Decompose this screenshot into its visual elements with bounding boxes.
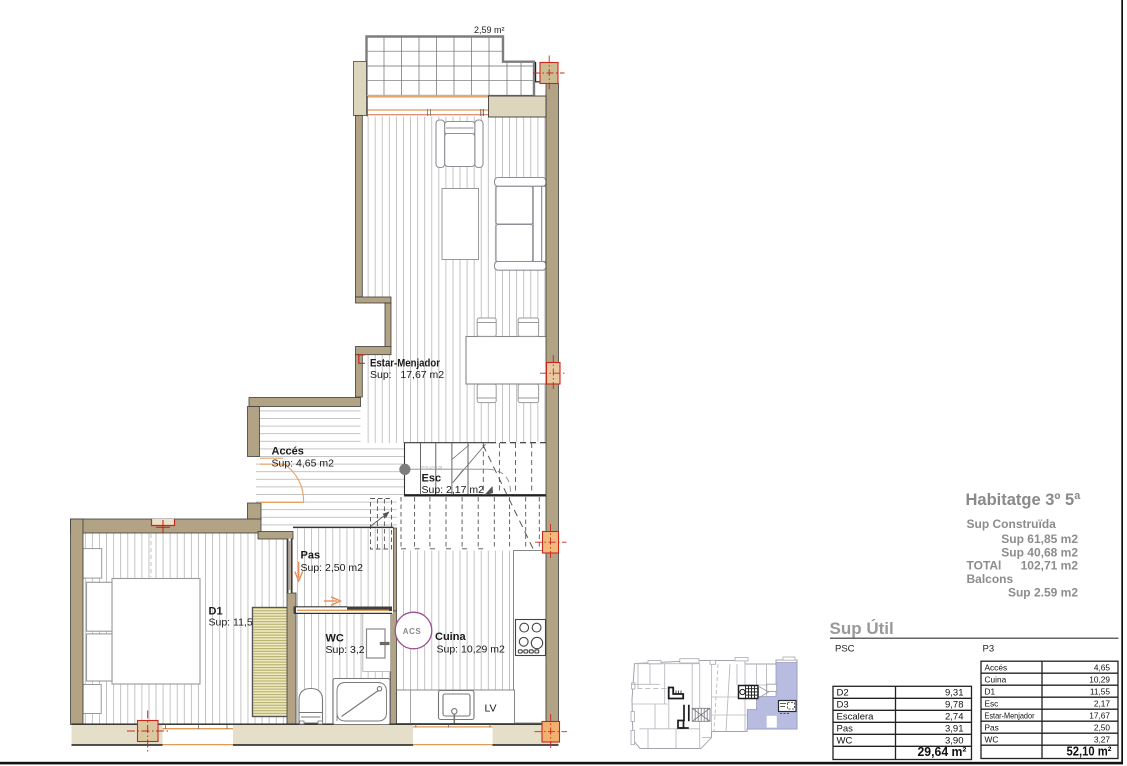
svg-text:Cuina: Cuina	[435, 631, 466, 643]
svg-text:LV: LV	[485, 703, 497, 715]
svg-text:3,91: 3,91	[945, 724, 964, 735]
svg-text:102,71 m2: 102,71 m2	[1021, 559, 1079, 573]
svg-text:D3: D3	[837, 700, 849, 711]
svg-text:WC: WC	[837, 736, 853, 747]
svg-text:Balcons: Balcons	[967, 572, 1014, 586]
svg-text:4,65: 4,65	[1094, 662, 1111, 672]
svg-text:Pas: Pas	[837, 724, 854, 735]
svg-text:Sup: 2,17 m2: Sup: 2,17 m2	[422, 484, 485, 496]
svg-text:Esc: Esc	[985, 698, 999, 708]
svg-text:9,31: 9,31	[945, 688, 964, 699]
svg-text:Sup Útil: Sup Útil	[830, 619, 894, 638]
svg-text:2,17: 2,17	[1094, 698, 1111, 708]
svg-text:Sup Construïda: Sup Construïda	[967, 517, 1057, 531]
svg-text:Habitatge 3º 5ª: Habitatge 3º 5ª	[966, 491, 1082, 509]
svg-text:Cuina: Cuina	[985, 674, 1007, 684]
svg-text:29,64 m²: 29,64 m²	[918, 744, 968, 759]
svg-text:2,59 m²: 2,59 m²	[474, 25, 505, 35]
svg-text:10,29: 10,29	[1089, 674, 1110, 684]
svg-text:P3: P3	[983, 644, 995, 655]
svg-text:ACS: ACS	[403, 627, 422, 636]
svg-text:Sup: 17,67 m2: Sup: 17,67 m2	[370, 369, 444, 381]
svg-text:D1: D1	[985, 686, 996, 696]
svg-text:WC: WC	[985, 734, 999, 744]
svg-text:P=0.17+0.28: P=0.17+0.28	[422, 466, 443, 470]
svg-text:Sup: 2,50 m2: Sup: 2,50 m2	[301, 562, 364, 574]
svg-text:Escalera: Escalera	[837, 712, 875, 723]
svg-text:2,50: 2,50	[1094, 722, 1111, 732]
svg-text:PSC: PSC	[835, 644, 855, 655]
svg-text:2,74: 2,74	[945, 712, 964, 723]
svg-text:Estar-Menjador: Estar-Menjador	[370, 358, 441, 370]
svg-text:Esc: Esc	[422, 473, 442, 485]
svg-text:Estar-Menjador: Estar-Menjador	[985, 710, 1035, 720]
svg-text:Accés: Accés	[272, 446, 304, 458]
svg-text:17,67: 17,67	[1089, 710, 1110, 720]
svg-text:Sup: 3,2: Sup: 3,2	[326, 644, 365, 656]
svg-text:D2: D2	[837, 688, 849, 699]
svg-text:Pas: Pas	[985, 722, 999, 732]
svg-text:11,55: 11,55	[1090, 686, 1111, 696]
svg-text:Sup 40,68 m2: Sup 40,68 m2	[1001, 546, 1078, 560]
svg-text:Sup 2.59 m2: Sup 2.59 m2	[1008, 586, 1078, 600]
svg-text:9,78: 9,78	[945, 700, 964, 711]
svg-text:Pas: Pas	[301, 550, 321, 562]
svg-text:Accés: Accés	[985, 662, 1008, 672]
svg-text:TOTAl: TOTAl	[967, 559, 1002, 573]
svg-text:WC: WC	[326, 633, 344, 645]
svg-text:Sup: 4,65 m2: Sup: 4,65 m2	[272, 458, 335, 470]
svg-text:Sup: 10,29 m2: Sup: 10,29 m2	[437, 644, 505, 656]
svg-text:Sup 61,85 m2: Sup 61,85 m2	[1001, 532, 1078, 546]
svg-text:Sup: 11,5: Sup: 11,5	[209, 617, 253, 629]
svg-text:52,10 m²: 52,10 m²	[1067, 744, 1113, 759]
